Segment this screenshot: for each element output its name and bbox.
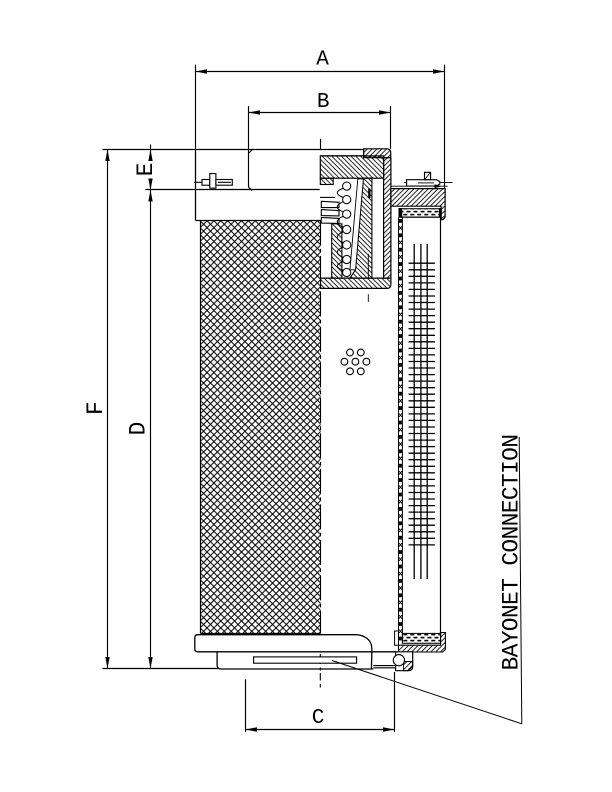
svg-text:B: B [317, 91, 330, 114]
svg-text:D: D [126, 422, 152, 436]
svg-text:A: A [316, 48, 329, 71]
svg-text:F: F [83, 401, 109, 415]
svg-text:BAYONET CONNECTION: BAYONET CONNECTION [499, 435, 525, 671]
svg-text:C: C [312, 707, 325, 730]
svg-text:E: E [133, 162, 159, 176]
